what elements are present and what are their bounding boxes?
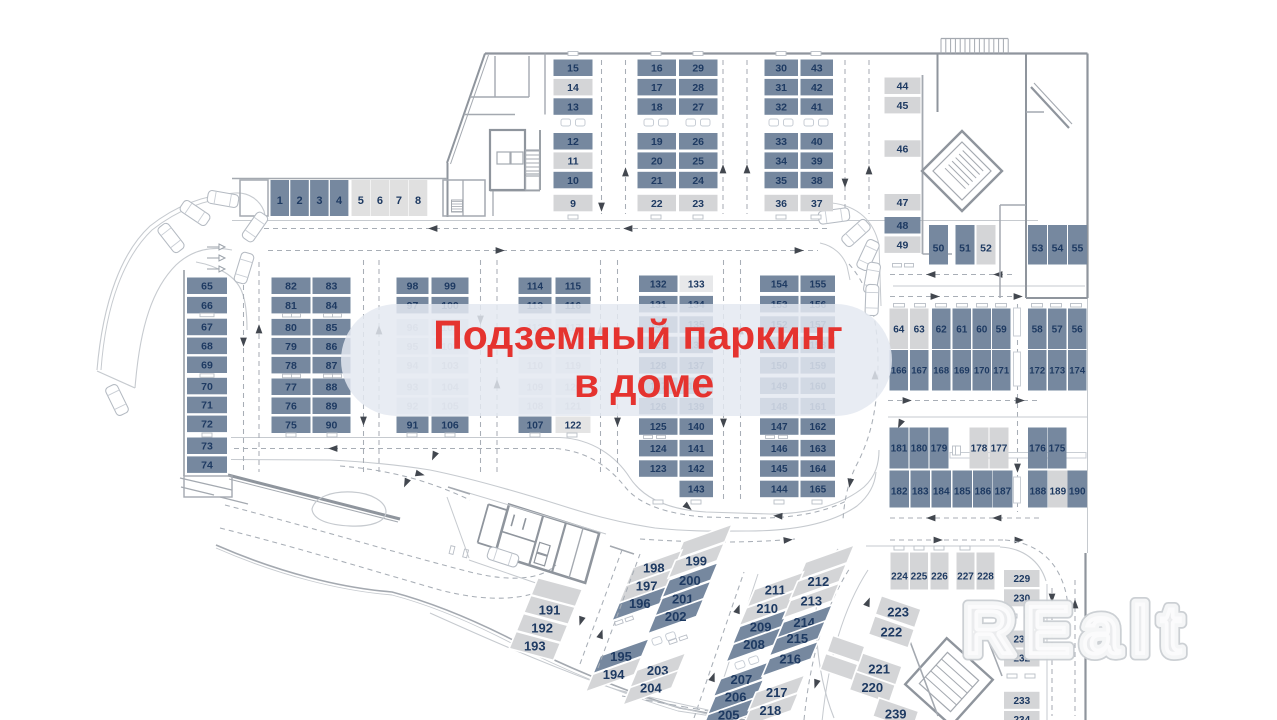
svg-text:24: 24 xyxy=(692,175,704,187)
svg-text:69: 69 xyxy=(201,360,213,372)
svg-text:15: 15 xyxy=(567,63,579,75)
svg-text:184: 184 xyxy=(933,487,950,498)
svg-text:218: 218 xyxy=(760,703,782,718)
svg-text:166: 166 xyxy=(891,366,907,377)
svg-text:47: 47 xyxy=(897,197,909,209)
svg-text:183: 183 xyxy=(912,487,929,498)
svg-text:67: 67 xyxy=(201,322,213,334)
svg-text:7: 7 xyxy=(396,195,402,207)
svg-text:41: 41 xyxy=(811,101,823,113)
svg-text:44: 44 xyxy=(897,81,909,93)
svg-text:226: 226 xyxy=(931,572,948,583)
svg-text:177: 177 xyxy=(991,444,1008,455)
svg-text:229: 229 xyxy=(1013,574,1030,585)
svg-text:4: 4 xyxy=(336,195,343,207)
svg-text:74: 74 xyxy=(201,459,213,471)
svg-text:19: 19 xyxy=(651,136,663,148)
svg-text:122: 122 xyxy=(565,420,582,431)
svg-text:32: 32 xyxy=(775,101,787,113)
svg-text:87: 87 xyxy=(326,360,338,372)
svg-text:187: 187 xyxy=(994,487,1011,498)
svg-text:35: 35 xyxy=(775,175,787,187)
svg-text:85: 85 xyxy=(326,322,338,334)
svg-text:52: 52 xyxy=(980,243,992,255)
svg-text:233: 233 xyxy=(1013,696,1030,707)
svg-text:185: 185 xyxy=(954,487,971,498)
svg-text:215: 215 xyxy=(786,631,808,646)
svg-text:91: 91 xyxy=(407,420,419,432)
svg-text:89: 89 xyxy=(326,401,338,413)
svg-text:196: 196 xyxy=(629,596,651,611)
svg-text:162: 162 xyxy=(809,422,826,433)
svg-text:70: 70 xyxy=(201,381,213,393)
svg-text:42: 42 xyxy=(811,82,823,94)
svg-text:79: 79 xyxy=(285,341,297,353)
svg-text:175: 175 xyxy=(1049,444,1066,455)
svg-text:155: 155 xyxy=(809,279,826,290)
svg-text:164: 164 xyxy=(809,464,826,475)
svg-text:141: 141 xyxy=(688,444,705,455)
svg-text:223: 223 xyxy=(887,604,909,619)
svg-text:169: 169 xyxy=(954,366,970,377)
svg-text:125: 125 xyxy=(650,422,667,433)
svg-text:165: 165 xyxy=(809,485,826,496)
svg-text:224: 224 xyxy=(891,572,908,583)
svg-text:61: 61 xyxy=(956,324,968,335)
svg-text:25: 25 xyxy=(692,155,704,167)
svg-text:34: 34 xyxy=(775,155,787,167)
svg-text:163: 163 xyxy=(809,444,826,455)
svg-text:115: 115 xyxy=(565,281,582,292)
svg-text:55: 55 xyxy=(1072,243,1084,255)
svg-text:Подземный паркинг: Подземный паркинг xyxy=(433,312,842,358)
svg-text:220: 220 xyxy=(861,680,883,695)
svg-text:76: 76 xyxy=(285,401,297,413)
svg-text:23: 23 xyxy=(692,198,704,210)
svg-text:38: 38 xyxy=(811,175,823,187)
svg-text:65: 65 xyxy=(201,281,213,293)
svg-text:99: 99 xyxy=(444,281,456,293)
svg-text:192: 192 xyxy=(531,621,553,636)
svg-text:66: 66 xyxy=(201,300,213,312)
svg-text:49: 49 xyxy=(897,239,909,251)
svg-text:16: 16 xyxy=(651,63,663,75)
svg-text:78: 78 xyxy=(285,360,297,372)
svg-text:189: 189 xyxy=(1049,487,1066,498)
svg-text:10: 10 xyxy=(567,175,579,187)
svg-text:13: 13 xyxy=(567,101,579,113)
svg-text:22: 22 xyxy=(651,198,663,210)
svg-text:222: 222 xyxy=(881,625,903,640)
svg-text:173: 173 xyxy=(1049,366,1065,377)
svg-text:143: 143 xyxy=(688,485,705,496)
svg-text:73: 73 xyxy=(201,441,213,453)
svg-text:174: 174 xyxy=(1069,366,1086,377)
svg-text:9: 9 xyxy=(570,198,576,210)
svg-text:146: 146 xyxy=(771,444,788,455)
svg-text:77: 77 xyxy=(285,382,297,394)
svg-text:5: 5 xyxy=(358,195,364,207)
svg-text:18: 18 xyxy=(651,101,663,113)
svg-text:190: 190 xyxy=(1069,487,1086,498)
svg-text:98: 98 xyxy=(407,281,419,293)
svg-text:28: 28 xyxy=(692,82,704,94)
svg-text:80: 80 xyxy=(285,322,297,334)
svg-text:82: 82 xyxy=(285,281,297,293)
svg-text:176: 176 xyxy=(1029,444,1046,455)
svg-text:27: 27 xyxy=(692,101,704,113)
svg-text:3: 3 xyxy=(316,195,322,207)
svg-text:36: 36 xyxy=(775,198,787,210)
svg-text:145: 145 xyxy=(771,464,788,475)
svg-text:170: 170 xyxy=(974,366,990,377)
svg-text:180: 180 xyxy=(911,444,928,455)
svg-text:54: 54 xyxy=(1052,243,1064,255)
svg-text:133: 133 xyxy=(688,279,705,290)
svg-text:REalt: REalt xyxy=(963,591,1192,671)
svg-text:234: 234 xyxy=(1013,715,1030,720)
svg-text:142: 142 xyxy=(688,464,705,475)
svg-text:1: 1 xyxy=(277,195,283,207)
svg-text:46: 46 xyxy=(897,143,909,155)
svg-text:208: 208 xyxy=(743,637,765,652)
svg-text:182: 182 xyxy=(891,487,908,498)
svg-text:51: 51 xyxy=(959,243,971,255)
svg-text:72: 72 xyxy=(201,419,213,431)
svg-text:147: 147 xyxy=(771,422,788,433)
svg-text:227: 227 xyxy=(957,572,974,583)
svg-text:191: 191 xyxy=(539,603,561,618)
svg-text:68: 68 xyxy=(201,341,213,353)
svg-text:167: 167 xyxy=(911,366,927,377)
svg-text:59: 59 xyxy=(996,324,1008,335)
svg-text:20: 20 xyxy=(651,155,663,167)
svg-text:88: 88 xyxy=(326,382,338,394)
svg-text:212: 212 xyxy=(808,574,830,589)
svg-text:81: 81 xyxy=(285,300,297,312)
svg-text:75: 75 xyxy=(285,420,297,432)
svg-text:171: 171 xyxy=(993,366,1010,377)
svg-text:31: 31 xyxy=(775,82,787,94)
svg-text:90: 90 xyxy=(326,420,338,432)
svg-text:140: 140 xyxy=(688,422,705,433)
svg-text:50: 50 xyxy=(933,243,945,255)
svg-text:57: 57 xyxy=(1052,324,1064,335)
svg-text:188: 188 xyxy=(1029,487,1046,498)
svg-text:6: 6 xyxy=(377,195,383,207)
svg-text:12: 12 xyxy=(567,136,579,148)
svg-text:43: 43 xyxy=(811,63,823,75)
svg-text:8: 8 xyxy=(415,195,421,207)
svg-text:56: 56 xyxy=(1072,324,1084,335)
svg-text:40: 40 xyxy=(811,136,823,148)
svg-text:39: 39 xyxy=(811,155,823,167)
svg-text:30: 30 xyxy=(775,63,787,75)
svg-text:179: 179 xyxy=(931,444,948,455)
svg-text:194: 194 xyxy=(603,667,625,682)
svg-text:132: 132 xyxy=(650,279,667,290)
svg-text:63: 63 xyxy=(914,324,926,335)
svg-text:29: 29 xyxy=(692,63,704,75)
svg-text:216: 216 xyxy=(779,652,801,667)
svg-text:213: 213 xyxy=(800,593,822,608)
svg-text:21: 21 xyxy=(651,175,663,187)
svg-text:123: 123 xyxy=(650,464,667,475)
svg-text:228: 228 xyxy=(977,572,994,583)
svg-text:205: 205 xyxy=(718,707,740,720)
svg-text:53: 53 xyxy=(1032,243,1044,255)
svg-text:14: 14 xyxy=(567,82,579,94)
svg-text:199: 199 xyxy=(685,553,707,568)
svg-text:221: 221 xyxy=(868,662,890,677)
svg-text:124: 124 xyxy=(650,444,667,455)
svg-text:144: 144 xyxy=(771,485,788,496)
svg-text:2: 2 xyxy=(297,195,303,207)
svg-text:11: 11 xyxy=(567,155,578,167)
svg-text:60: 60 xyxy=(976,324,988,335)
svg-text:17: 17 xyxy=(651,82,663,94)
svg-text:106: 106 xyxy=(441,420,459,432)
svg-text:64: 64 xyxy=(893,324,905,335)
svg-text:168: 168 xyxy=(933,366,949,377)
svg-text:26: 26 xyxy=(692,136,704,148)
svg-text:84: 84 xyxy=(326,300,338,312)
svg-text:181: 181 xyxy=(891,444,908,455)
svg-text:114: 114 xyxy=(527,281,544,292)
svg-text:33: 33 xyxy=(775,136,787,148)
svg-text:172: 172 xyxy=(1029,366,1045,377)
svg-text:225: 225 xyxy=(911,572,928,583)
svg-text:48: 48 xyxy=(897,220,909,232)
svg-text:62: 62 xyxy=(936,324,948,335)
svg-text:186: 186 xyxy=(974,487,991,498)
svg-text:204: 204 xyxy=(640,680,662,695)
svg-text:154: 154 xyxy=(771,279,788,290)
svg-text:в доме: в доме xyxy=(574,360,714,406)
svg-text:71: 71 xyxy=(201,400,213,412)
svg-text:86: 86 xyxy=(326,341,338,353)
svg-text:37: 37 xyxy=(811,198,823,210)
svg-text:83: 83 xyxy=(326,281,338,293)
svg-text:202: 202 xyxy=(665,609,687,624)
svg-text:178: 178 xyxy=(971,444,988,455)
svg-text:45: 45 xyxy=(897,100,909,112)
svg-text:58: 58 xyxy=(1032,324,1044,335)
svg-text:239: 239 xyxy=(885,707,907,720)
svg-text:107: 107 xyxy=(527,420,544,431)
svg-text:193: 193 xyxy=(524,639,546,654)
